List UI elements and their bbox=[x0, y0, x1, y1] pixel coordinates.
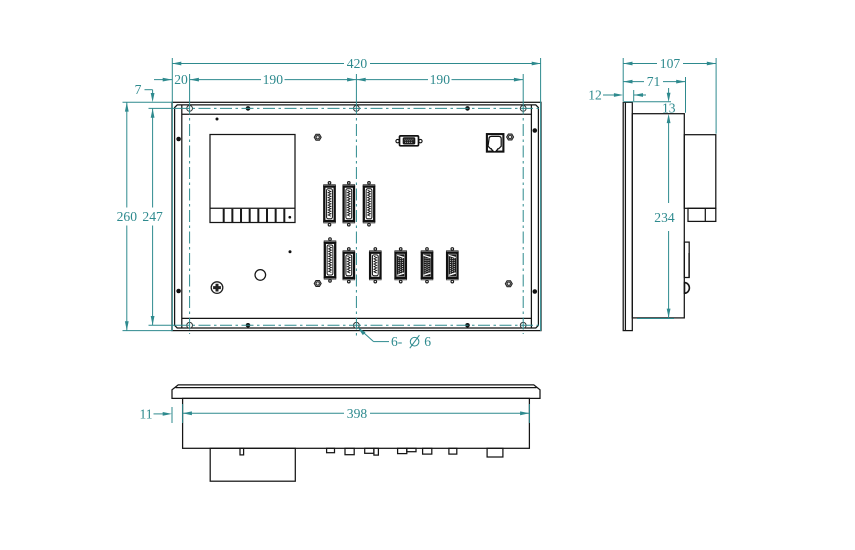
svg-text:12: 12 bbox=[588, 87, 602, 102]
svg-text:234: 234 bbox=[654, 210, 675, 225]
svg-text:11: 11 bbox=[139, 407, 152, 422]
svg-text:71: 71 bbox=[647, 74, 661, 89]
svg-text:107: 107 bbox=[660, 56, 681, 71]
svg-text:190: 190 bbox=[263, 72, 284, 87]
svg-text:190: 190 bbox=[430, 72, 451, 87]
svg-text:20: 20 bbox=[174, 72, 188, 87]
svg-text:260: 260 bbox=[117, 209, 138, 224]
svg-text:247: 247 bbox=[142, 209, 163, 224]
svg-text:398: 398 bbox=[347, 406, 368, 421]
svg-text:7: 7 bbox=[135, 82, 142, 97]
svg-text:13: 13 bbox=[662, 101, 676, 116]
svg-text:420: 420 bbox=[347, 56, 368, 71]
